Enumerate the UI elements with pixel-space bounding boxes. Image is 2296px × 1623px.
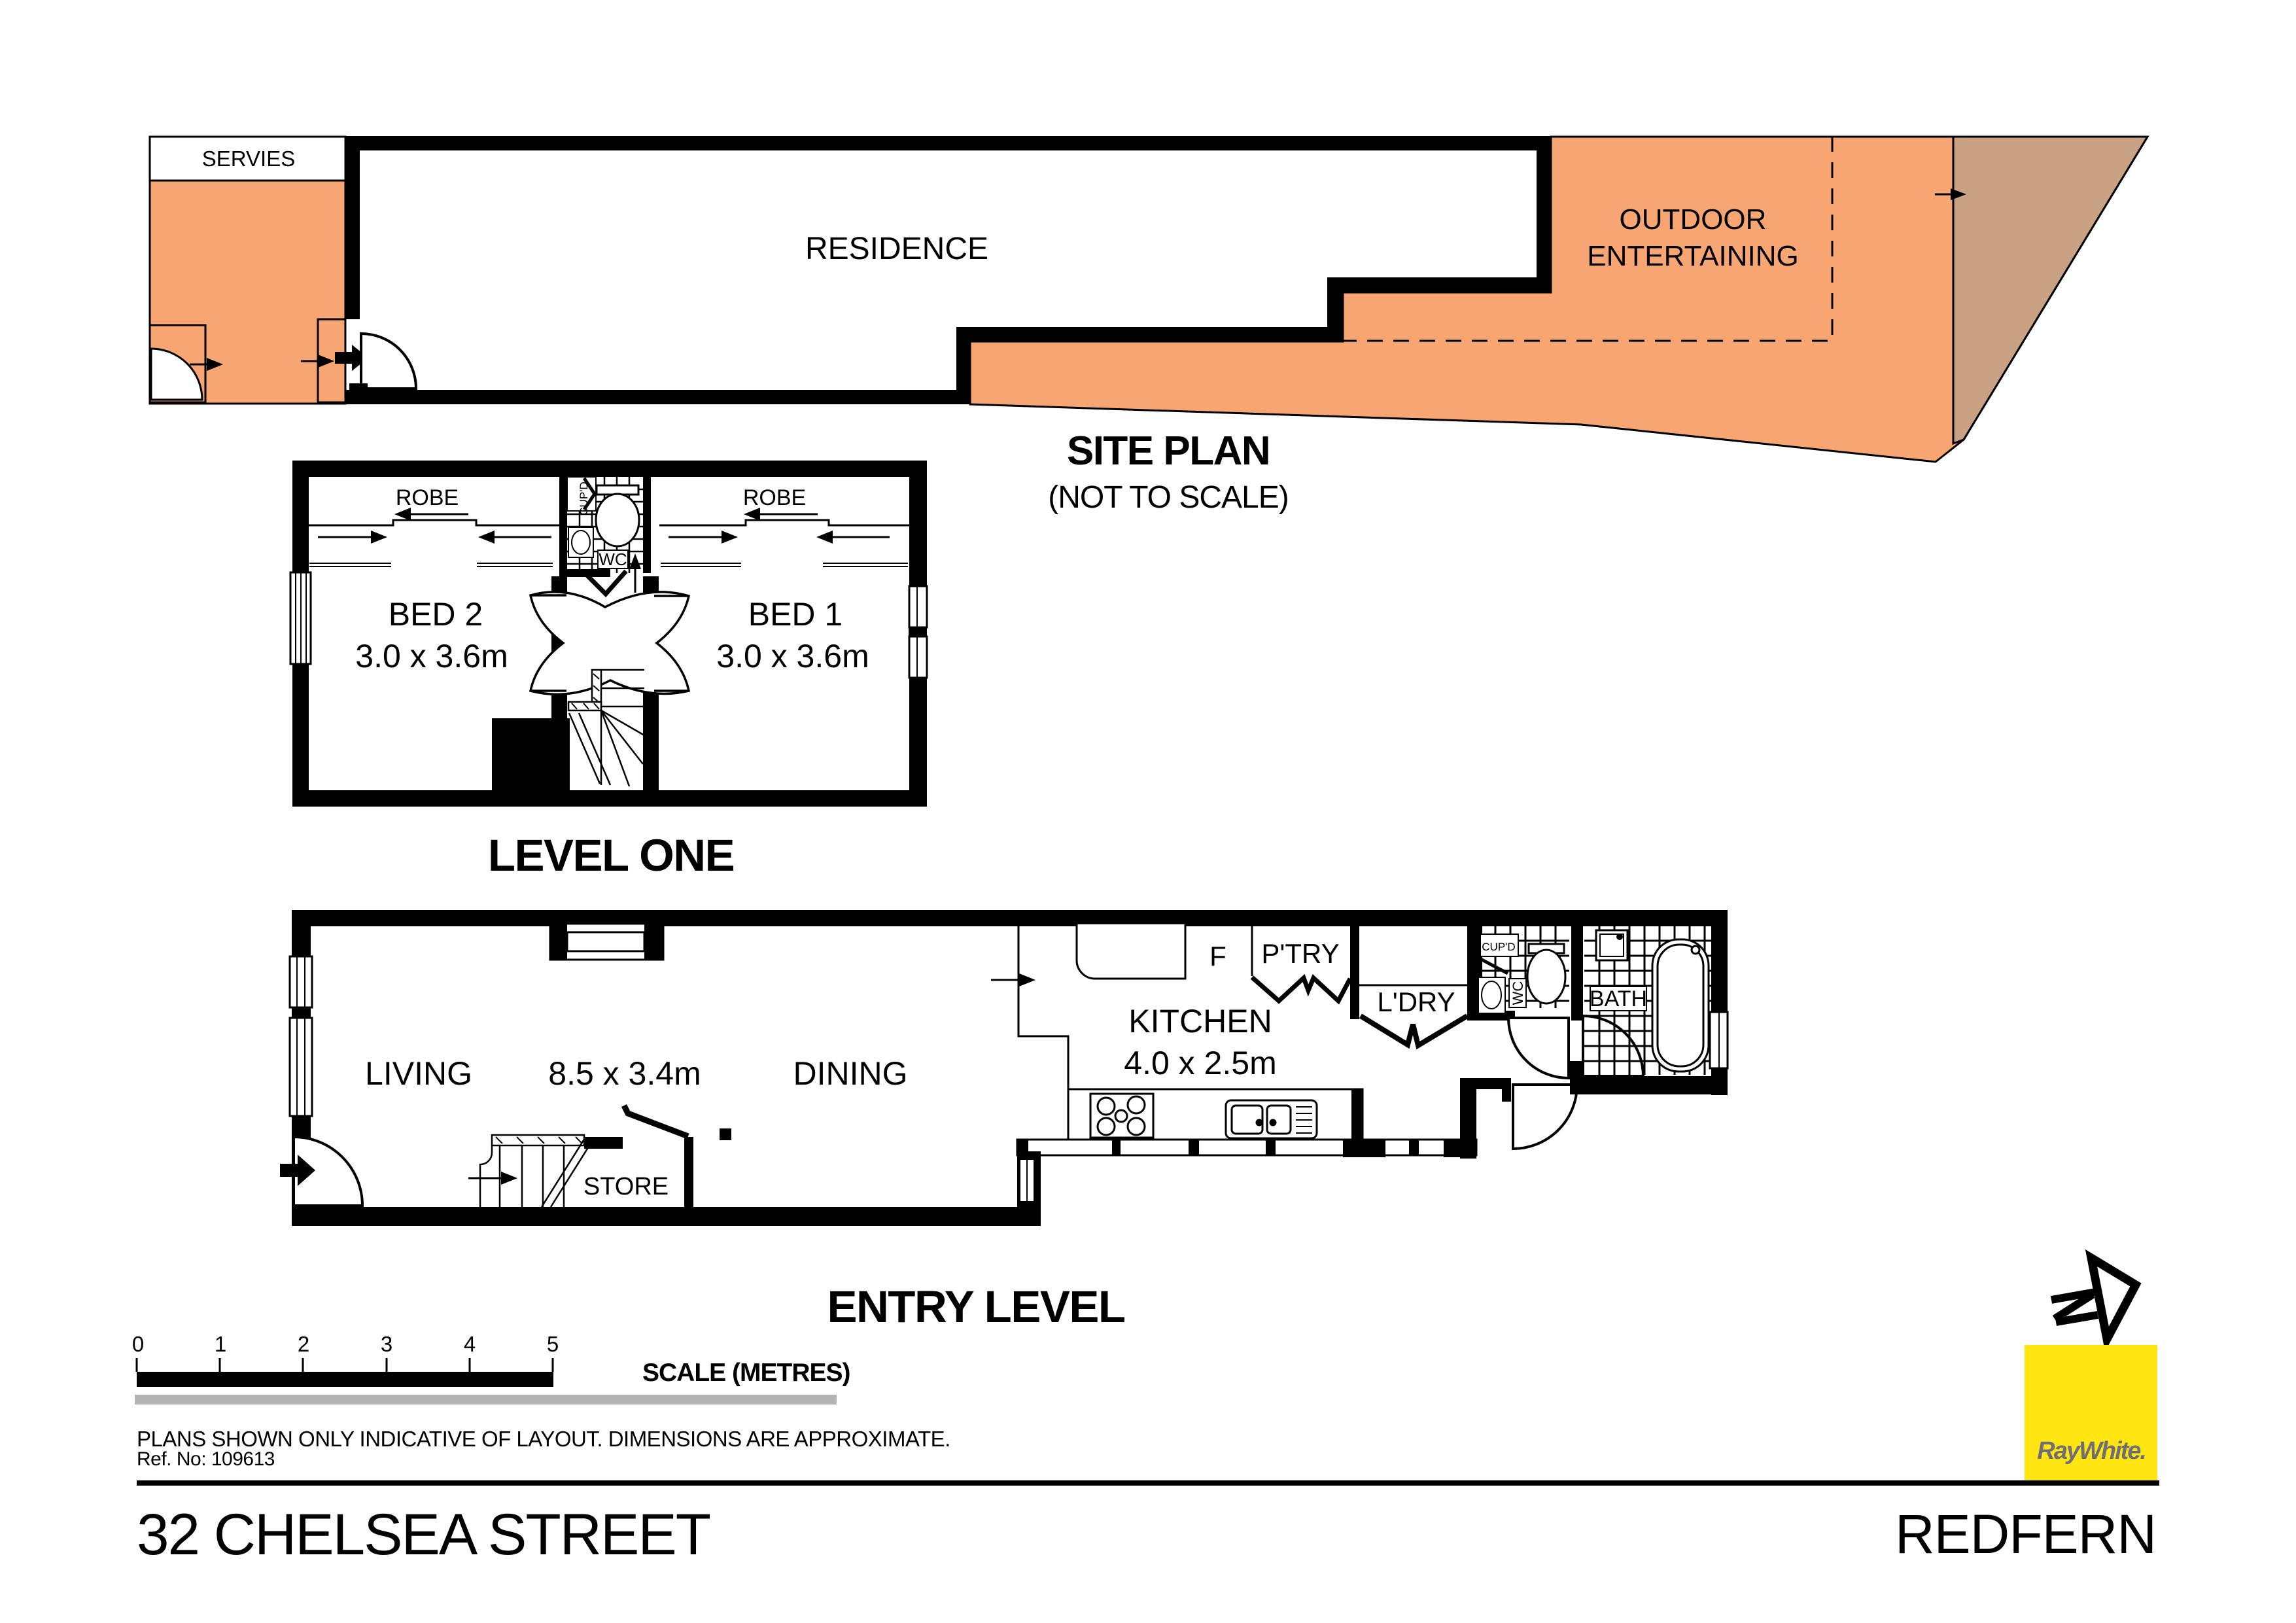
svg-text:OUTDOOR: OUTDOOR xyxy=(1620,203,1767,236)
svg-text:3.0 x 3.6m: 3.0 x 3.6m xyxy=(716,638,869,674)
svg-text:1: 1 xyxy=(215,1332,226,1356)
svg-text:0: 0 xyxy=(132,1332,144,1356)
svg-text:DINING: DINING xyxy=(793,1055,908,1092)
svg-text:ROBE: ROBE xyxy=(396,485,459,510)
svg-text:3: 3 xyxy=(381,1332,392,1356)
svg-text:SITE PLAN: SITE PLAN xyxy=(1067,428,1270,474)
svg-text:SERVIES: SERVIES xyxy=(202,147,295,171)
svg-text:CUP'D: CUP'D xyxy=(578,481,590,515)
svg-text:(NOT TO SCALE): (NOT TO SCALE) xyxy=(1048,480,1288,515)
svg-text:5: 5 xyxy=(547,1332,559,1356)
svg-text:ROBE: ROBE xyxy=(743,485,806,510)
svg-text:LIVING: LIVING xyxy=(365,1055,472,1092)
svg-text:RESIDENCE: RESIDENCE xyxy=(805,232,988,266)
svg-text:32 CHELSEA STREET: 32 CHELSEA STREET xyxy=(137,1501,710,1567)
svg-text:8.5 x 3.4m: 8.5 x 3.4m xyxy=(548,1055,701,1092)
svg-text:SCALE (METRES): SCALE (METRES) xyxy=(642,1359,850,1387)
svg-text:P'TRY: P'TRY xyxy=(1261,938,1339,969)
svg-text:WC: WC xyxy=(599,550,627,569)
svg-text:PLANS SHOWN ONLY INDICATIVE OF: PLANS SHOWN ONLY INDICATIVE OF LAYOUT. D… xyxy=(137,1427,950,1451)
svg-text:BED 1: BED 1 xyxy=(748,596,843,633)
svg-text:4: 4 xyxy=(464,1332,476,1356)
svg-text:2: 2 xyxy=(298,1332,309,1356)
svg-text:BATH: BATH xyxy=(1590,986,1647,1011)
svg-text:BED 2: BED 2 xyxy=(389,596,483,633)
svg-text:RayWhite.: RayWhite. xyxy=(2037,1437,2146,1465)
svg-text:REDFERN: REDFERN xyxy=(1895,1503,2156,1565)
svg-text:ENTERTAINING: ENTERTAINING xyxy=(1587,240,1799,272)
svg-text:3.0 x 3.6m: 3.0 x 3.6m xyxy=(355,638,508,674)
svg-text:KITCHEN: KITCHEN xyxy=(1128,1003,1272,1039)
svg-text:STORE: STORE xyxy=(583,1173,669,1200)
svg-text:L'DRY: L'DRY xyxy=(1377,986,1455,1017)
svg-text:CUP'D: CUP'D xyxy=(1482,941,1515,953)
svg-text:WC: WC xyxy=(1510,981,1526,1005)
svg-text:ENTRY LEVEL: ENTRY LEVEL xyxy=(827,1282,1124,1332)
svg-text:F: F xyxy=(1209,941,1226,971)
svg-text:4.0 x 2.5m: 4.0 x 2.5m xyxy=(1124,1045,1276,1081)
svg-text:LEVEL ONE: LEVEL ONE xyxy=(488,830,734,881)
svg-text:Ref. No: 109613: Ref. No: 109613 xyxy=(137,1448,275,1470)
